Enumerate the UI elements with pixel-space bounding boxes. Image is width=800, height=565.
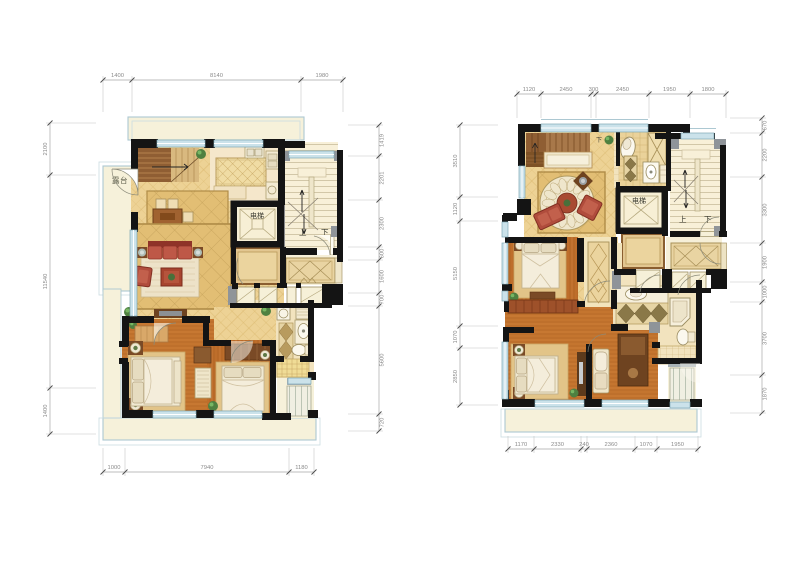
svg-text:720: 720 <box>380 418 386 428</box>
svg-text:2100: 2100 <box>43 143 49 156</box>
svg-text:600: 600 <box>380 249 386 259</box>
svg-text:1900: 1900 <box>763 256 769 269</box>
svg-text:1120: 1120 <box>523 87 535 93</box>
svg-text:2850: 2850 <box>453 370 459 383</box>
svg-text:1419: 1419 <box>380 134 386 147</box>
svg-text:1870: 1870 <box>763 388 769 401</box>
svg-text:1000: 1000 <box>763 286 769 299</box>
svg-text:7940: 7940 <box>201 465 214 471</box>
svg-text:240: 240 <box>579 442 589 448</box>
svg-text:上: 上 <box>679 215 687 224</box>
svg-text:300: 300 <box>589 87 599 93</box>
svg-text:2300: 2300 <box>380 217 386 230</box>
svg-text:8140: 8140 <box>210 73 223 79</box>
svg-text:1180: 1180 <box>295 465 307 471</box>
svg-text:2200: 2200 <box>763 149 769 162</box>
svg-text:670: 670 <box>763 121 769 131</box>
svg-text:1800: 1800 <box>702 87 715 93</box>
svg-text:1070: 1070 <box>640 442 653 448</box>
svg-text:3510: 3510 <box>453 155 459 168</box>
svg-text:11540: 11540 <box>43 274 49 290</box>
svg-text:1070: 1070 <box>453 331 459 344</box>
svg-text:1950: 1950 <box>671 442 684 448</box>
svg-text:5600: 5600 <box>380 354 386 367</box>
svg-text:电梯: 电梯 <box>632 196 646 205</box>
svg-text:2360: 2360 <box>605 442 618 448</box>
svg-text:5150: 5150 <box>453 267 459 280</box>
svg-text:1120: 1120 <box>453 203 459 215</box>
svg-text:3700: 3700 <box>763 332 769 345</box>
svg-text:上: 上 <box>299 228 307 237</box>
svg-text:下: 下 <box>596 137 602 144</box>
svg-text:1170: 1170 <box>515 442 527 448</box>
svg-text:3300: 3300 <box>763 204 769 217</box>
svg-text:1980: 1980 <box>316 73 329 79</box>
svg-text:1400: 1400 <box>43 405 49 418</box>
svg-text:电梯: 电梯 <box>250 211 264 220</box>
svg-text:1600: 1600 <box>380 270 386 283</box>
svg-text:2450: 2450 <box>560 87 573 93</box>
svg-text:2450: 2450 <box>616 87 629 93</box>
svg-text:1400: 1400 <box>111 73 124 79</box>
svg-text:1000: 1000 <box>108 465 121 471</box>
svg-text:1950: 1950 <box>663 87 676 93</box>
svg-text:2330: 2330 <box>551 442 564 448</box>
svg-text:700: 700 <box>380 295 386 305</box>
svg-text:2201: 2201 <box>380 172 386 185</box>
